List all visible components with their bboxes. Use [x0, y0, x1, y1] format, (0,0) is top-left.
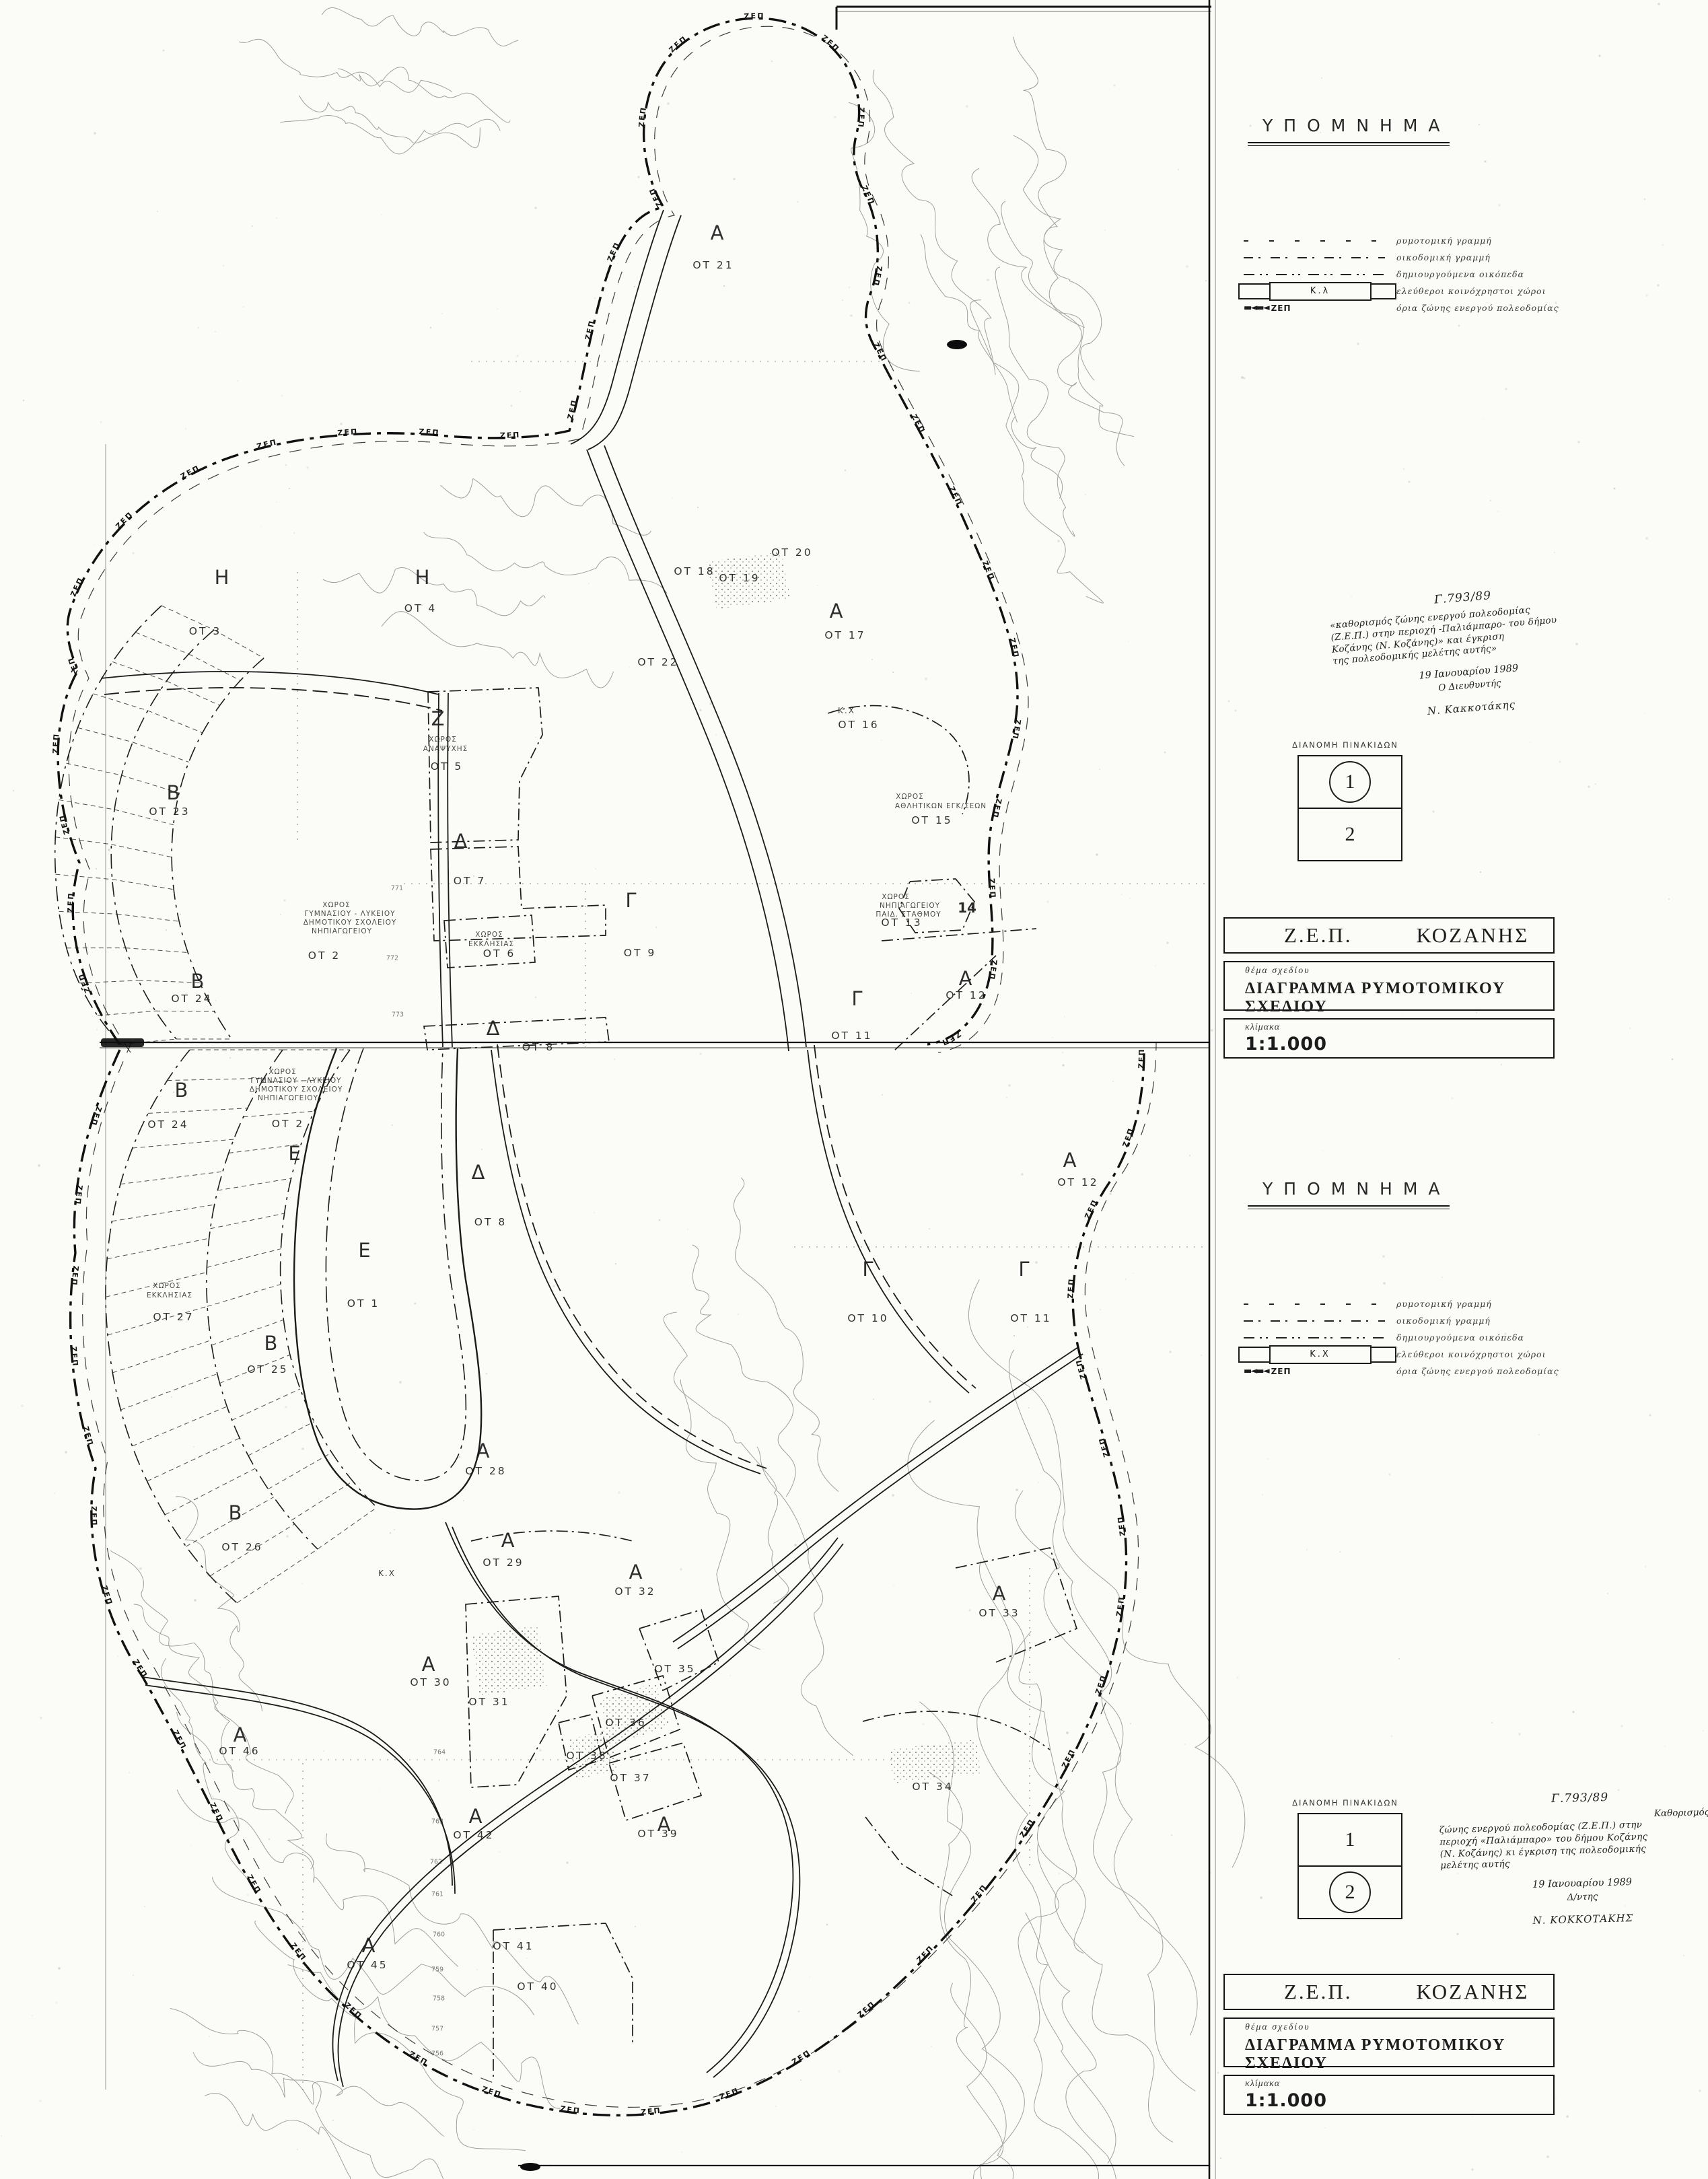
zone-letter-label: Α [959, 967, 973, 990]
block-number-label: ΟΤ 18 [674, 565, 715, 577]
block-number-label: ΟΤ 27 [153, 1311, 194, 1323]
block-number-label: ΟΤ 37 [610, 1772, 651, 1784]
block-number-label: ΟΤ 20 [771, 546, 812, 559]
zone-letter-label: Α [830, 600, 844, 622]
block-outlines [424, 688, 1077, 2079]
zone-letter-label: Β [191, 970, 205, 993]
zone-letter-label: Δ [487, 1017, 501, 1040]
subject-value: ΔΙΑΓΡΑΜΜΑ ΡΥΜΟΤΟΜΙΚΟΥ ΣΧΕΔΙΟΥ [1245, 980, 1553, 1016]
legend-items: ρυμοτομική γραμμήοικοδομική γραμμήδημιου… [1238, 1295, 1555, 1380]
approval-stamp-top: Γ.793/89«καθορισμός ζώνης ενεργού πολεοδ… [1328, 581, 1606, 725]
contour-elevation-label: 764 [433, 1749, 446, 1756]
sheet-index-box: 12 [1297, 1813, 1402, 1919]
block-number-label: ΟΤ 6 [483, 948, 515, 960]
scale-label: κλίμακα [1245, 2079, 1553, 2089]
zone-letter-label: Α [422, 1653, 436, 1676]
zone-letter-label: Α [711, 221, 725, 244]
block-number-label: ΟΤ 38 [566, 1750, 607, 1762]
land-use-annotation: ΓΥΜΝΑΣΙΟΥ - ΛΥΚΕΙΟΥ [250, 1077, 341, 1085]
svg-text:ΖΕΠ ΖΕΠ: ΖΕΠ ΖΕΠ ΖΕΠ ΖΕΠ ΖΕΠ ΖΕΠ ΖΕΠ ΖΕΠ ΖΕΠ ΖΕΠ … [0, 0, 1146, 2117]
ring-road [294, 1048, 481, 1509]
legend-item: οικοδομική γραμμή [1238, 249, 1555, 266]
construction-lines [202, 361, 1208, 2093]
zone-letter-label: Ε [288, 1142, 301, 1165]
scale-row: κλίμακα 1:1.000 [1223, 2075, 1555, 2115]
legend-symbol-d1-icon [1238, 240, 1396, 242]
legend-symbol-box-icon: Κ.λ [1238, 283, 1396, 299]
legend-item: Κ.λελεύθεροι κοινόχρηστοι χώροι [1238, 283, 1555, 299]
zone-letter-label: Β [264, 1332, 279, 1355]
block-number-label: ΟΤ 41 [493, 1940, 534, 1952]
legend-item: Κ.Χελεύθεροι κοινόχρηστοι χώροι [1238, 1346, 1555, 1363]
zone-letter-label: Ζ [431, 707, 446, 730]
land-use-annotation: ΝΗΠΙΑΓΩΓΕΙΟΥ [880, 902, 940, 910]
land-use-annotation: ΧΩΡΟΣ [153, 1282, 180, 1290]
sheet-index-bottom: ΔΙΑΝΟΜΗ ΠΙΝΑΚΙΔΩΝ 12 [1297, 1798, 1402, 1919]
legend-item-label: οικοδομική γραμμή [1396, 252, 1491, 262]
block-number-label: ΟΤ 12 [1057, 1176, 1098, 1188]
zone-letter-label: Β [167, 781, 181, 804]
contour-elevation-label: 773 [392, 1011, 404, 1019]
block-number-label: ΟΤ 16 [838, 719, 879, 731]
block-number-label: ΟΤ 28 [465, 1465, 506, 1477]
zone-letter-label: Α [476, 1439, 491, 1462]
legend-item-label: ρυμοτομική γραμμή [1396, 1299, 1492, 1309]
project-municipality: ΚΟΖΑΝΗΣ [1417, 923, 1530, 948]
block-number-label: ΟΤ 45 [347, 1959, 388, 1971]
roads [101, 210, 1083, 2087]
legend-symbol-d3-icon [1238, 274, 1396, 275]
block-number-label: ΟΤ 29 [483, 1557, 524, 1569]
block-number-label: ΟΤ 26 [221, 1541, 262, 1553]
approval-stamp-bottom: Γ.793/89Καθορισμόςζώνης ενεργού πολεοδομ… [1438, 1788, 1708, 1929]
land-use-annotation: ΔΗΜΟΤΙΚΟΥ ΣΧΟΛΕΙΟΥ [304, 919, 397, 927]
legend-symbol-d2-icon [1238, 1320, 1396, 1322]
legend-item-label: όρια ζώνης ενεργού πολεοδομίας [1396, 1366, 1559, 1376]
legend-items: ρυμοτομική γραμμήοικοδομική γραμμήδημιου… [1238, 232, 1555, 316]
sheet-index-cell: 2 [1299, 808, 1401, 860]
block-number-label: ΟΤ 12 [946, 989, 987, 1001]
legend-item-label: ελεύθεροι κοινόχρηστοι χώροι [1396, 1349, 1546, 1359]
land-use-annotation: ΧΩΡΟΣ [269, 1068, 296, 1076]
legend-item: ▬◄▬◄ΖΕΠόρια ζώνης ενεργού πολεοδομίας [1238, 1363, 1555, 1380]
scanned-plan-sheet: ΖΕΠ ΖΕΠ ΖΕΠ ΖΕΠ ΖΕΠ ΖΕΠ ΖΕΠ ΖΕΠ ΖΕΠ ΖΕΠ … [0, 0, 1708, 2179]
project-municipality: ΚΟΖΑΝΗΣ [1417, 1980, 1530, 2004]
block-number-label: ΟΤ 7 [454, 875, 486, 887]
sheet-index-cell: 1 [1299, 756, 1401, 808]
zone-letter-label: Α [234, 1723, 248, 1746]
contour-elevation-label: 772 [386, 955, 398, 962]
block-number-label: ΟΤ 25 [247, 1363, 288, 1376]
legend-item: οικοδομική γραμμή [1238, 1312, 1555, 1329]
zep-boundary-sheet1: ΖΕΠ ΖΕΠ ΖΕΠ ΖΕΠ ΖΕΠ ΖΕΠ ΖΕΠ ΖΕΠ ΖΕΠ ΖΕΠ … [0, 0, 1028, 1052]
project-zone: Ζ.Ε.Π. [1284, 1980, 1353, 2004]
land-use-annotation: ΕΚΚΛΗΣΙΑΣ [147, 1291, 192, 1299]
block-number-label: ΟΤ 24 [171, 993, 212, 1005]
block-number-label: ΟΤ 33 [978, 1607, 1020, 1619]
block-number-label: ΟΤ 15 [911, 814, 952, 826]
block-number-label: ΟΤ 1 [347, 1297, 380, 1310]
block-number-label: ΟΤ 40 [517, 1980, 558, 1993]
subject-row: θέμα σχεδίου ΔΙΑΓΡΑΜΜΑ ΡΥΜΟΤΟΜΙΚΟΥ ΣΧΕΔΙ… [1223, 2017, 1555, 2067]
project-title-row: Ζ.Ε.Π. ΚΟΖΑΝΗΣ [1223, 1974, 1555, 2010]
contour-elevation-label: 763 [431, 1818, 443, 1826]
subject-label: θέμα σχεδίου [1245, 966, 1553, 976]
block-number-label: ΟΤ 24 [147, 1118, 188, 1131]
subject-value: ΔΙΑΓΡΑΜΜΑ ΡΥΜΟΤΟΜΙΚΟΥ ΣΧΕΔΙΟΥ [1245, 2036, 1553, 2073]
subject-label: θέμα σχεδίου [1245, 2022, 1553, 2033]
block-number-label: ΟΤ 11 [1010, 1312, 1051, 1324]
block-number-label: ΟΤ 8 [522, 1041, 555, 1053]
svg-text:ΖΕΠ ΖΕΠ: ΖΕΠ ΖΕΠ ΖΕΠ ΖΕΠ ΖΕΠ ΖΕΠ ΖΕΠ ΖΕΠ ΖΕΠ ΖΕΠ … [0, 0, 1024, 1051]
zone-letter-label: Α [1063, 1149, 1077, 1172]
land-use-annotation: ΔΗΜΟΤΙΚΟΥ ΣΧΟΛΕΙΟΥ [250, 1085, 343, 1094]
block-number-label: ΟΤ 31 [468, 1696, 509, 1708]
block-number-label: ΟΤ 5 [431, 760, 463, 773]
block-number-label: ΟΤ 36 [605, 1717, 646, 1729]
zone-letter-label: Γ [1018, 1258, 1030, 1281]
zone-letter-label: Α [469, 1805, 483, 1828]
active-sheet-circle: 1 [1329, 761, 1371, 803]
legend-symbol-d2-icon [1238, 257, 1396, 258]
contour-elevation-label: 771 [391, 885, 403, 892]
project-zone: Ζ.Ε.Π. [1284, 923, 1353, 948]
land-use-annotation: ΓΥΜΝΑΣΙΟΥ - ΛΥΚΕΙΟΥ [304, 910, 395, 918]
land-use-annotation: ΝΗΠΙΑΓΩΓΕΙΟΥ [312, 927, 372, 935]
sheet-index-title: ΔΙΑΝΟΜΗ ΠΙΝΑΚΙΔΩΝ [1288, 740, 1402, 750]
block-number-label: ΟΤ 4 [404, 602, 437, 614]
contour-elevation-label: 762 [430, 1859, 442, 1866]
land-use-annotation: ΧΩΡΟΣ [322, 901, 350, 909]
block-number-label: ΟΤ 23 [149, 806, 190, 818]
zone-letter-label: Δ [454, 830, 468, 853]
block-number-label: ΟΤ 30 [410, 1676, 451, 1688]
legend-item: δημιουργούμενα οικόπεδα [1238, 266, 1555, 283]
legend-rule [1248, 1205, 1450, 1209]
contour-elevation-label: 761 [431, 1891, 443, 1898]
legend-rule [1248, 142, 1450, 146]
sheet-index-title: ΔΙΑΝΟΜΗ ΠΙΝΑΚΙΔΩΝ [1288, 1798, 1402, 1808]
legend-item: δημιουργούμενα οικόπεδα [1238, 1329, 1555, 1346]
legend-symbol-d3-icon [1238, 1337, 1396, 1338]
title-block-top: Ζ.Ε.Π. ΚΟΖΑΝΗΣ θέμα σχεδίου ΔΙΑΓΡΑΜΜΑ ΡΥ… [1223, 917, 1555, 1066]
legend-symbol-zep-icon: ▬◄▬◄ΖΕΠ [1238, 1366, 1396, 1376]
legend-symbol-zep-icon: ▬◄▬◄ΖΕΠ [1238, 303, 1396, 313]
block-number-label: ΟΤ 21 [692, 259, 734, 271]
block-number-label: ΟΤ 34 [912, 1781, 953, 1793]
zone-letter-label: Γ [851, 987, 863, 1010]
block-number-label: ΟΤ 3 [189, 625, 221, 637]
land-use-annotation: ΧΩΡΟΣ [429, 736, 456, 744]
contour-elevation-label: 756 [431, 2050, 443, 2058]
zone-letter-label: Β [175, 1079, 189, 1102]
land-use-annotation: ΧΩΡΟΣ [475, 931, 503, 939]
zone-letter-label: Β [229, 1501, 243, 1524]
project-title-row: Ζ.Ε.Π. ΚΟΖΑΝΗΣ [1223, 917, 1555, 954]
sheet-index-cell: 2 [1299, 1865, 1401, 1918]
map-label: Κ.Χ [838, 706, 855, 715]
sheet-index-box: 12 [1297, 755, 1402, 861]
block-number-label: ΟΤ 2 [272, 1118, 304, 1130]
legend-bottom: ΥΠΟΜΝΗΜΑ ρυμοτομική γραμμήοικοδομική γρα… [1238, 1179, 1555, 1380]
block-number-label: ΟΤ 11 [831, 1030, 872, 1042]
land-use-annotation: ΧΩΡΟΣ [882, 893, 909, 901]
zone-letter-label: Γ [862, 1258, 874, 1281]
block-number-label: ΟΤ 10 [847, 1312, 888, 1324]
legend-title: ΥΠΟΜΝΗΜΑ [1238, 116, 1555, 135]
scale-value: 1:1.000 [1245, 2090, 1553, 2111]
zone-letter-label: Η [215, 566, 230, 589]
legend-symbol-box-icon: Κ.Χ [1238, 1347, 1396, 1363]
block-number-label: ΟΤ 19 [719, 572, 760, 584]
block-number-label: ΟΤ 2 [308, 950, 341, 962]
legend-item-label: δημιουργούμενα οικόπεδα [1396, 269, 1524, 279]
land-use-annotation: ΕΚΚΛΗΣΙΑΣ [468, 940, 514, 948]
block-number-label: ΟΤ 22 [637, 656, 678, 668]
zone-letter-label: Α [501, 1529, 515, 1552]
legend-item-label: οικοδομική γραμμή [1396, 1316, 1491, 1326]
block-number-label: ΟΤ 42 [453, 1829, 494, 1841]
legend-item: ρυμοτομική γραμμή [1238, 1295, 1555, 1312]
legend-title: ΥΠΟΜΝΗΜΑ [1238, 1179, 1555, 1199]
contour-elevation-label: 758 [433, 1995, 445, 2003]
legend-item-label: δημιουργούμενα οικόπεδα [1396, 1332, 1524, 1343]
contour-elevation-label: 760 [433, 1931, 445, 1939]
zone-letter-label: Γ [625, 889, 637, 912]
block-number-label: ΟΤ 39 [637, 1828, 678, 1840]
land-use-annotation: ΧΩΡΟΣ [896, 793, 923, 801]
zone-letter-label: Α [993, 1582, 1007, 1605]
scale-row: κλίμακα 1:1.000 [1223, 1018, 1555, 1059]
scale-label: κλίμακα [1245, 1022, 1553, 1033]
block-number-label: ΟΤ 8 [474, 1216, 507, 1228]
map-label: 14 [958, 900, 976, 916]
block-number-label: ΟΤ 17 [824, 629, 865, 641]
active-sheet-circle: 2 [1329, 1871, 1371, 1913]
zone-letter-label: Α [629, 1561, 643, 1583]
zone-letter-label: Η [415, 566, 431, 589]
map-label: Κ.Χ [378, 1569, 396, 1578]
block-number-label: ΟΤ 32 [614, 1585, 655, 1598]
legend-item-label: ελεύθεροι κοινόχρηστοι χώροι [1396, 286, 1546, 296]
zone-letter-label: Ε [358, 1239, 371, 1262]
land-use-annotation: ΑΘΛΗΤΙΚΩΝ ΕΓΚ/ΣΕΩΝ [895, 802, 987, 810]
subject-row: θέμα σχεδίου ΔΙΑΓΡΑΜΜΑ ΡΥΜΟΤΟΜΙΚΟΥ ΣΧΕΔΙ… [1223, 961, 1555, 1011]
land-use-annotation: ΝΗΠΙΑΓΩΓΕΙΟΥ [258, 1094, 318, 1102]
zone-letter-label: Δ [472, 1161, 486, 1184]
land-use-annotation: ΑΝΑΨΥΧΗΣ [423, 745, 468, 753]
zone-letter-label: Α [362, 1934, 376, 1957]
legend-item-label: ρυμοτομική γραμμή [1396, 236, 1492, 246]
block-number-label: ΟΤ 9 [624, 947, 656, 959]
legend-item: ρυμοτομική γραμμή [1238, 232, 1555, 249]
legend-top: ΥΠΟΜΝΗΜΑ ρυμοτομική γραμμήοικοδομική γρα… [1238, 116, 1555, 316]
contour-elevation-label: 759 [431, 1966, 443, 1974]
zep-boundary-sheet2: ΖΕΠ ΖΕΠ ΖΕΠ ΖΕΠ ΖΕΠ ΖΕΠ ΖΕΠ ΖΕΠ ΖΕΠ ΖΕΠ … [0, 0, 1156, 2117]
land-use-annotation: ΠΑΙΔ. ΣΤΑΘΜΟΥ [876, 910, 941, 919]
legend-item-label: όρια ζώνης ενεργού πολεοδομίας [1396, 303, 1559, 313]
block-number-label: ΟΤ 46 [219, 1745, 260, 1757]
scale-value: 1:1.000 [1245, 1034, 1553, 1055]
contour-elevation-label: 757 [431, 2026, 443, 2033]
title-block-bottom: Ζ.Ε.Π. ΚΟΖΑΝΗΣ θέμα σχεδίου ΔΙΑΓΡΑΜΜΑ ΡΥ… [1223, 1974, 1555, 2122]
sheet-index-cell: 1 [1299, 1814, 1401, 1865]
legend-symbol-d1-icon [1238, 1303, 1396, 1305]
block-number-label: ΟΤ 35 [654, 1663, 695, 1675]
legend-item: ▬◄▬◄ΖΕΠόρια ζώνης ενεργού πολεοδομίας [1238, 299, 1555, 316]
sheet-index-top: ΔΙΑΝΟΜΗ ΠΙΝΑΚΙΔΩΝ 12 [1297, 740, 1402, 861]
